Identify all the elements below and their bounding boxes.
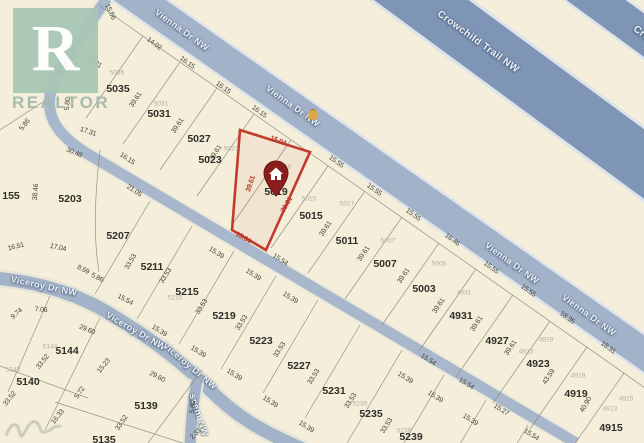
map-canvas[interactable]: Vienna Dr NWVienna Dr NWVienna Dr NWVien… bbox=[0, 0, 644, 443]
home-pin-icon[interactable] bbox=[264, 161, 288, 196]
realtor-logo-word: REALTOR bbox=[12, 93, 110, 113]
realtor-logo: R bbox=[13, 8, 98, 93]
pedestrian-poi-icon bbox=[309, 109, 318, 120]
realtor-logo-r: R bbox=[32, 16, 80, 82]
